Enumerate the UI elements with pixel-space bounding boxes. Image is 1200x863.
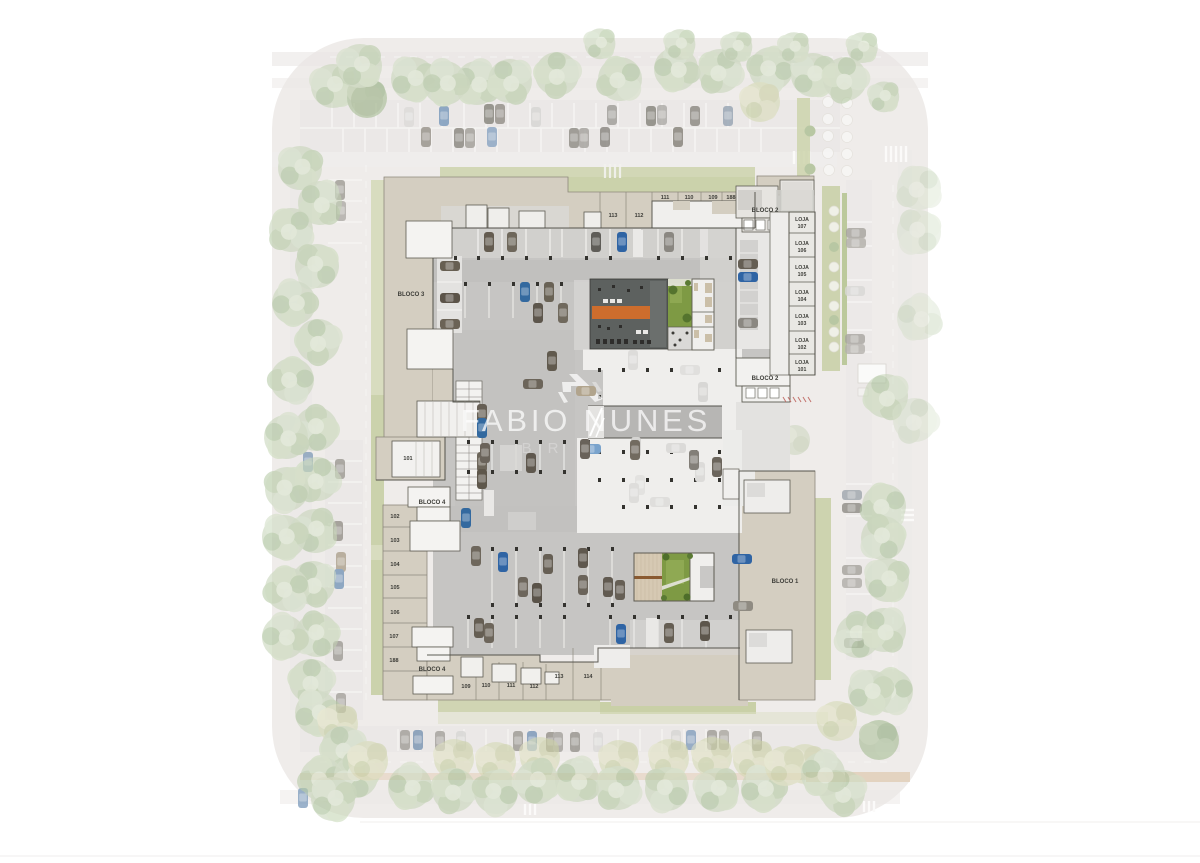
svg-text:112: 112	[635, 213, 644, 219]
svg-text:107: 107	[798, 224, 807, 230]
svg-text:104: 104	[798, 297, 807, 303]
svg-text:109: 109	[708, 195, 717, 201]
svg-text:103: 103	[798, 321, 807, 327]
svg-text:102: 102	[390, 514, 399, 520]
svg-text:BLOCO 2: BLOCO 2	[752, 208, 779, 214]
svg-text:109: 109	[461, 684, 470, 690]
svg-text:114: 114	[584, 674, 594, 680]
svg-text:104: 104	[390, 562, 400, 568]
svg-text:101: 101	[403, 456, 412, 462]
svg-text:110: 110	[482, 683, 491, 689]
svg-text:111: 111	[661, 195, 670, 201]
svg-text:105: 105	[390, 585, 399, 591]
svg-text:188: 188	[726, 195, 735, 201]
svg-text:BLOCO 1: BLOCO 1	[772, 579, 799, 585]
svg-text:LOJA: LOJA	[795, 314, 809, 320]
svg-text:BR: BR	[522, 440, 575, 457]
svg-text:106: 106	[390, 610, 399, 616]
svg-text:110: 110	[685, 195, 694, 201]
svg-text:BLOCO 4: BLOCO 4	[419, 500, 446, 506]
svg-text:BLOCO 2: BLOCO 2	[752, 376, 779, 382]
svg-text:LOJA: LOJA	[795, 338, 809, 344]
svg-text:LOJA: LOJA	[795, 241, 809, 247]
svg-text:101: 101	[798, 367, 807, 373]
svg-text:113: 113	[609, 213, 618, 219]
svg-text:FABIO NUNES: FABIO NUNES	[461, 403, 711, 438]
svg-text:BLOCO 3: BLOCO 3	[398, 292, 425, 298]
svg-text:188: 188	[389, 658, 398, 664]
svg-text:112: 112	[530, 684, 539, 690]
svg-text:106: 106	[798, 248, 807, 254]
svg-text:103: 103	[390, 538, 399, 544]
svg-text:111: 111	[507, 683, 516, 689]
svg-text:105: 105	[798, 272, 807, 278]
svg-text:LOJA: LOJA	[795, 360, 809, 366]
svg-text:102: 102	[798, 345, 807, 351]
svg-text:107: 107	[389, 634, 398, 640]
svg-text:LOJA: LOJA	[795, 265, 809, 271]
svg-text:LOJA: LOJA	[795, 217, 809, 223]
svg-text:BLOCO 4: BLOCO 4	[419, 667, 446, 673]
svg-text:113: 113	[555, 674, 564, 680]
svg-text:LOJA: LOJA	[795, 290, 809, 296]
